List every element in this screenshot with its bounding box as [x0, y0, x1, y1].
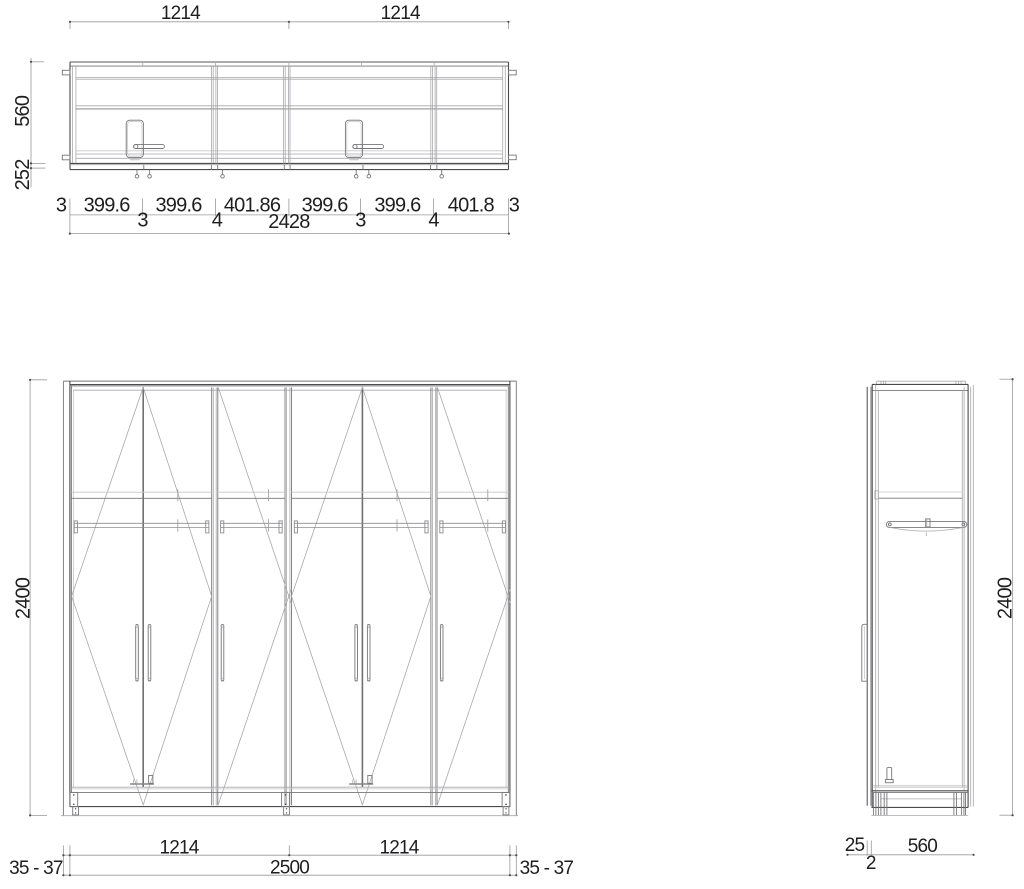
svg-text:35 - 37: 35 - 37 — [520, 858, 574, 879]
svg-text:399.6: 399.6 — [84, 195, 131, 217]
svg-text:1214: 1214 — [161, 3, 201, 24]
svg-text:3: 3 — [56, 195, 67, 217]
svg-text:401.8: 401.8 — [448, 195, 495, 217]
svg-text:3: 3 — [355, 210, 366, 232]
svg-text:4: 4 — [428, 210, 439, 232]
svg-text:2500: 2500 — [270, 858, 309, 879]
svg-text:3: 3 — [509, 195, 520, 217]
svg-text:2400: 2400 — [12, 577, 34, 619]
svg-text:3: 3 — [137, 210, 148, 232]
svg-text:2: 2 — [866, 853, 876, 874]
svg-text:25: 25 — [845, 835, 865, 856]
svg-text:4: 4 — [212, 210, 223, 232]
svg-text:1214: 1214 — [159, 838, 199, 859]
svg-text:2428: 2428 — [268, 211, 310, 233]
svg-text:35 - 37: 35 - 37 — [9, 858, 63, 879]
svg-text:399.6: 399.6 — [374, 195, 421, 217]
svg-text:399.6: 399.6 — [155, 195, 202, 217]
svg-text:1214: 1214 — [381, 3, 421, 24]
svg-text:252: 252 — [12, 159, 34, 191]
svg-text:560: 560 — [908, 836, 938, 857]
svg-text:2400: 2400 — [994, 577, 1016, 619]
svg-text:560: 560 — [12, 95, 34, 127]
svg-text:1214: 1214 — [379, 838, 419, 859]
